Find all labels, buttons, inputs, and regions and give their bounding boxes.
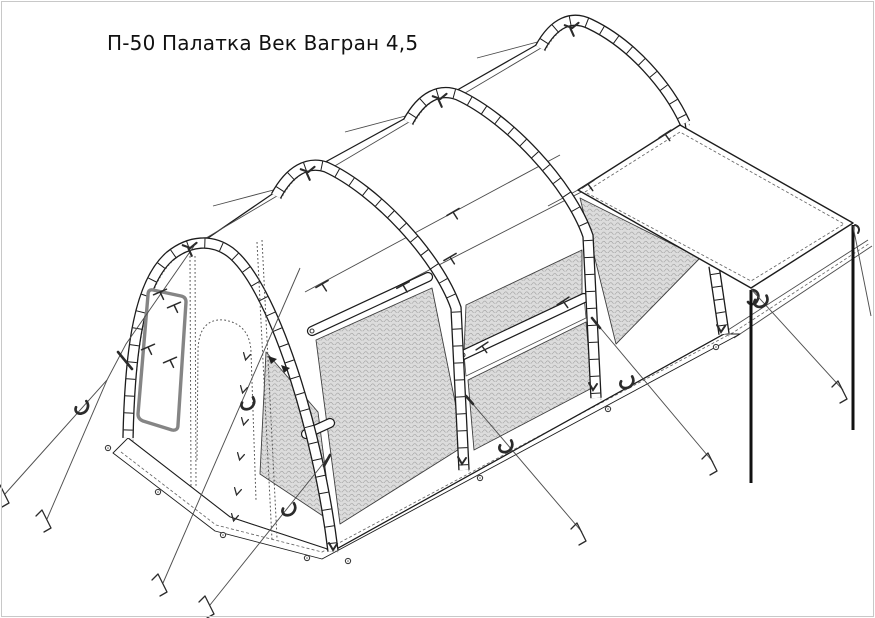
guy-line [47,380,107,519]
grommet-hole [347,560,349,562]
stake-icon [152,574,167,596]
front-window [138,290,186,430]
grommet-hole [157,491,159,493]
guy-line [853,226,871,316]
grommet-hole [607,408,609,410]
stake-icon [832,381,847,403]
illustration-page: П-50 Палатка Век Вагран 4,5 [0,0,875,618]
grommet-hole [715,346,717,348]
stake-icon [36,510,51,532]
diagram-title: П-50 Палатка Век Вагран 4,5 [107,31,418,55]
stake-icon [0,485,9,507]
stake-icon [571,523,586,545]
stake-icon [199,596,214,618]
stake-icon [702,453,717,475]
grommet-hole [222,534,224,536]
tent-line-drawing [0,0,875,618]
grommet-hole [107,447,109,449]
grommet-hole [306,557,308,559]
grommet-hole [479,477,481,479]
